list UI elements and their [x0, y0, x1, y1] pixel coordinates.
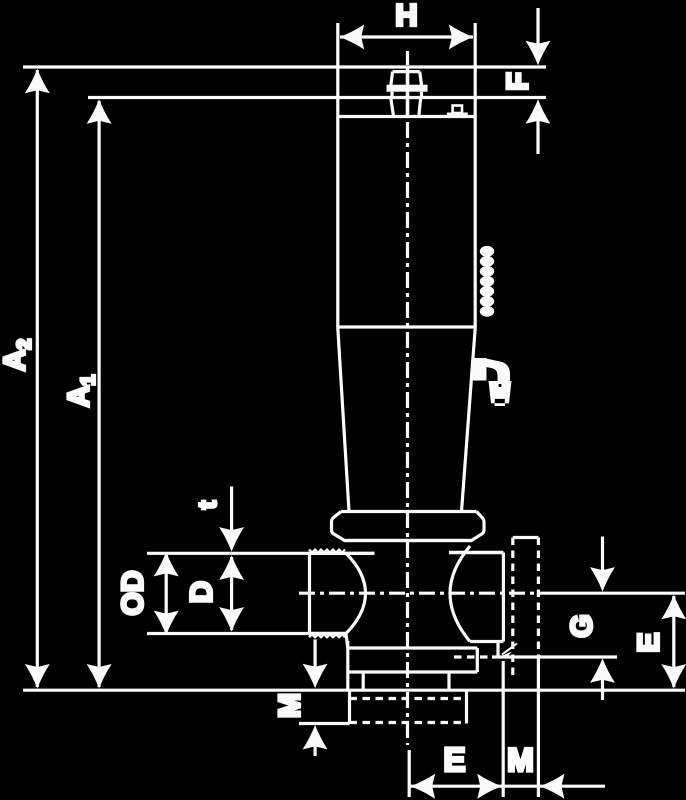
svg-text:M: M: [274, 693, 307, 718]
svg-text:G: G: [566, 614, 599, 637]
svg-text:OD: OD: [117, 571, 150, 616]
svg-text:H: H: [395, 0, 417, 33]
svg-text:A1: A1: [63, 374, 100, 407]
svg-text:E: E: [443, 741, 465, 778]
svg-text:M: M: [507, 742, 534, 778]
svg-text:t: t: [194, 500, 222, 509]
svg-text:E: E: [633, 632, 666, 652]
svg-text:A2: A2: [0, 339, 36, 371]
svg-text:D: D: [184, 581, 219, 603]
svg-text:F: F: [502, 72, 535, 90]
